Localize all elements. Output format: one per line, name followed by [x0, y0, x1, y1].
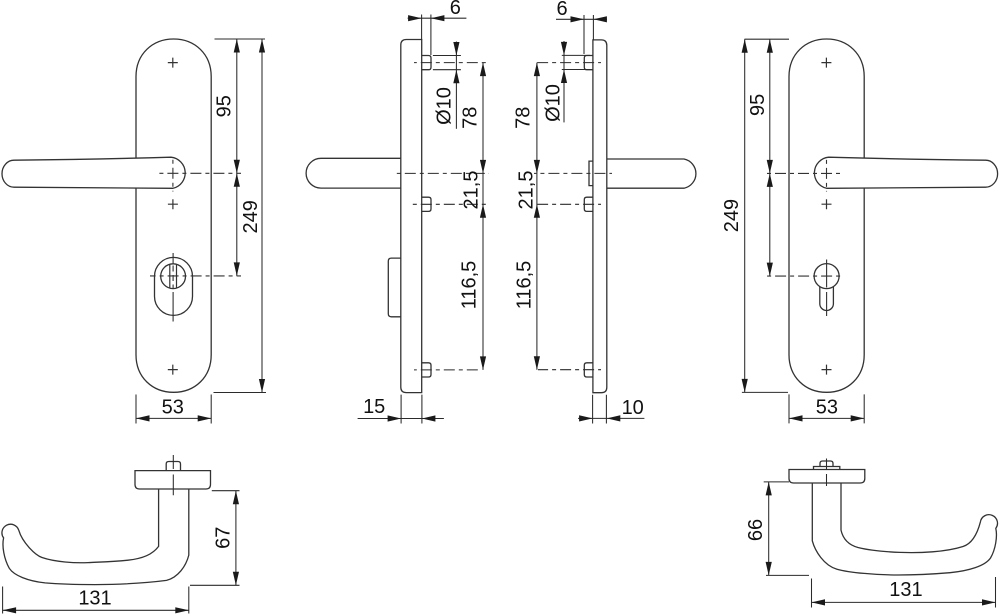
svg-text:53: 53	[162, 396, 184, 418]
svg-text:6: 6	[450, 0, 461, 19]
svg-text:Ø10: Ø10	[542, 84, 564, 122]
svg-text:116,5: 116,5	[514, 261, 536, 310]
svg-text:249: 249	[240, 200, 262, 233]
svg-text:67: 67	[213, 527, 235, 549]
svg-text:66: 66	[745, 519, 767, 541]
svg-text:53: 53	[816, 396, 838, 418]
svg-text:21,5: 21,5	[515, 171, 537, 210]
svg-text:249: 249	[721, 199, 743, 232]
svg-text:6: 6	[556, 0, 567, 20]
svg-text:95: 95	[214, 95, 236, 117]
svg-text:Ø10: Ø10	[433, 87, 455, 125]
svg-text:21,5: 21,5	[460, 171, 482, 210]
svg-text:78: 78	[460, 107, 482, 129]
svg-text:131: 131	[889, 579, 922, 601]
svg-text:15: 15	[363, 396, 385, 418]
svg-text:10: 10	[622, 397, 644, 419]
svg-text:116,5: 116,5	[459, 261, 481, 310]
svg-text:131: 131	[78, 588, 111, 610]
svg-text:95: 95	[747, 94, 769, 116]
svg-text:78: 78	[512, 107, 534, 129]
